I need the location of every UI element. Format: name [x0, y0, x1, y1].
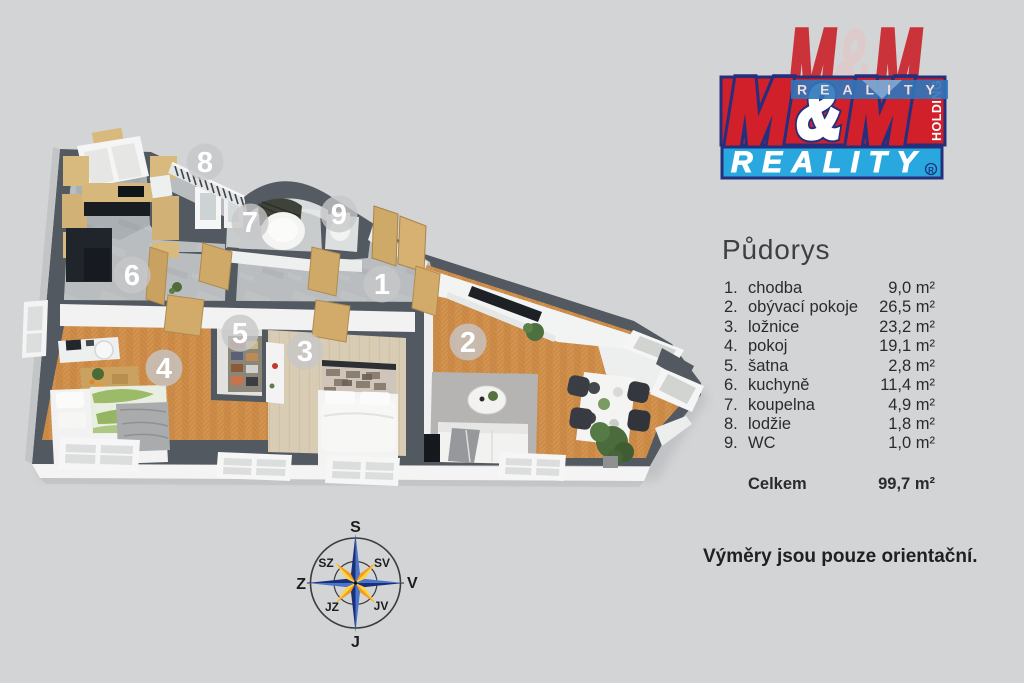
svg-text:1.: 1.: [724, 279, 738, 297]
svg-text:chodba: chodba: [748, 279, 803, 297]
svg-text:R: R: [928, 166, 934, 175]
svg-text:kuchyně: kuchyně: [748, 376, 809, 394]
svg-text:REALITY: REALITY: [731, 146, 926, 179]
svg-text:JV: JV: [374, 599, 389, 613]
svg-text:V: V: [407, 575, 418, 592]
svg-text:Z: Z: [296, 576, 306, 593]
svg-text:2.: 2.: [724, 298, 738, 316]
svg-text:9: 9: [331, 199, 347, 231]
svg-text:23,2 m²: 23,2 m²: [879, 318, 935, 336]
svg-text:8: 8: [197, 147, 213, 179]
svg-text:Půdorys: Půdorys: [722, 234, 830, 265]
svg-text:5: 5: [232, 318, 248, 350]
svg-text:1,0 m²: 1,0 m²: [888, 434, 935, 452]
svg-text:99,7 m²: 99,7 m²: [878, 475, 935, 493]
svg-text:lodžie: lodžie: [748, 415, 791, 433]
svg-text:koupelna: koupelna: [748, 396, 816, 414]
svg-text:9.: 9.: [724, 434, 738, 452]
svg-text:JZ: JZ: [325, 600, 339, 614]
svg-text:4: 4: [156, 353, 172, 385]
svg-text:11,4 m²: 11,4 m²: [880, 376, 935, 394]
svg-text:1: 1: [374, 269, 390, 301]
svg-text:7.: 7.: [724, 396, 738, 414]
svg-text:S: S: [350, 519, 361, 536]
svg-text:obývací pokoje: obývací pokoje: [748, 298, 858, 316]
svg-text:9,0 m²: 9,0 m²: [888, 279, 935, 297]
svg-text:SV: SV: [374, 556, 390, 570]
svg-text:J: J: [351, 634, 360, 651]
svg-text:pokoj: pokoj: [748, 337, 787, 355]
svg-text:SZ: SZ: [318, 556, 333, 570]
svg-text:2: 2: [460, 327, 476, 359]
svg-text:Výměry jsou pouze orientační.: Výměry jsou pouze orientační.: [703, 546, 978, 567]
svg-text:5.: 5.: [724, 357, 738, 375]
svg-text:ložnice: ložnice: [748, 318, 799, 336]
svg-text:7: 7: [242, 207, 258, 239]
svg-text:WC: WC: [748, 434, 776, 452]
svg-text:6.: 6.: [724, 376, 738, 394]
svg-text:šatna: šatna: [748, 357, 789, 375]
svg-text:4.: 4.: [724, 337, 738, 355]
svg-text:1,8 m²: 1,8 m²: [888, 415, 935, 433]
svg-text:6: 6: [124, 260, 140, 292]
svg-text:19,1 m²: 19,1 m²: [879, 337, 935, 355]
svg-text:3: 3: [297, 336, 313, 368]
svg-text:8.: 8.: [724, 415, 738, 433]
svg-text:2,8 m²: 2,8 m²: [888, 357, 935, 375]
svg-text:3.: 3.: [724, 318, 738, 336]
svg-text:REALITY: REALITY: [797, 82, 948, 98]
svg-text:4,9 m²: 4,9 m²: [888, 396, 935, 414]
svg-text:26,5 m²: 26,5 m²: [879, 298, 935, 316]
svg-text:Celkem: Celkem: [748, 475, 807, 493]
